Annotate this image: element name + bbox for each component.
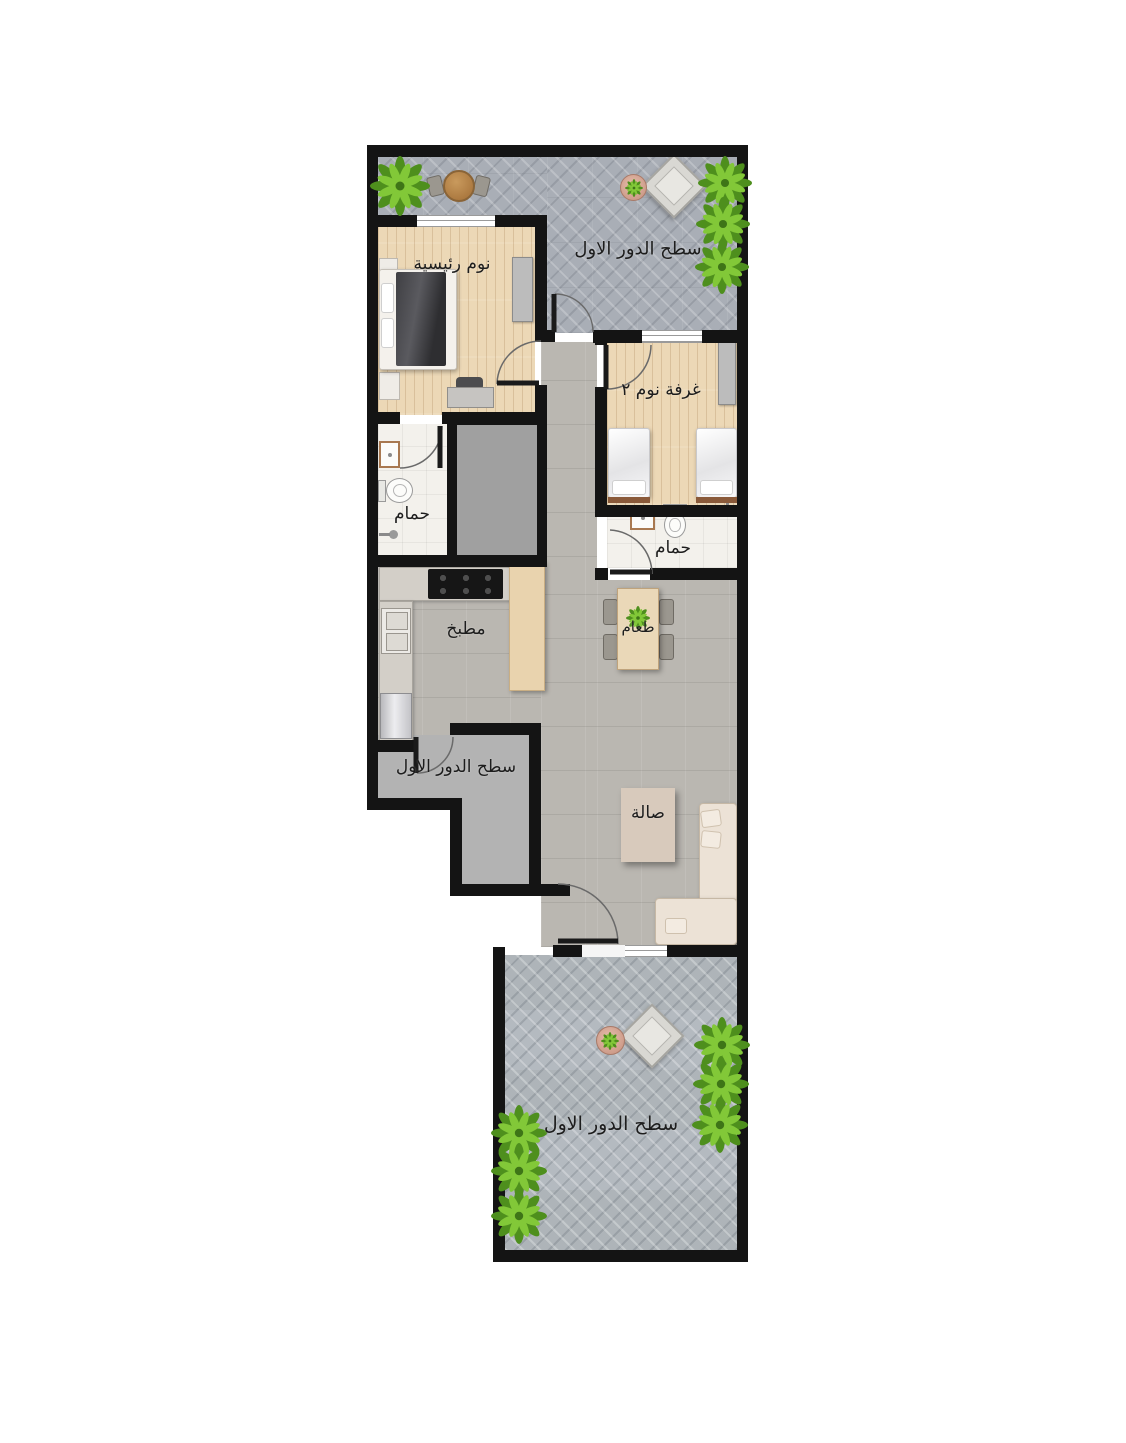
- wall: [595, 330, 607, 345]
- terrace-bottom-floor: [505, 955, 737, 1250]
- wall: [367, 412, 400, 424]
- living-window: [625, 945, 667, 957]
- wall: [595, 568, 608, 580]
- terrace-side-label: سطح الدور الاول: [396, 757, 516, 777]
- master-bedroom-window: [417, 215, 495, 227]
- wall: [595, 387, 607, 517]
- wall: [535, 215, 547, 342]
- living-door-opening: [582, 945, 625, 957]
- bathroom1-sink: [379, 441, 400, 468]
- wall: [667, 945, 737, 957]
- wall: [537, 415, 547, 567]
- kitchen-label: مطبخ: [446, 619, 485, 639]
- wall: [367, 145, 378, 810]
- wall: [737, 145, 748, 1262]
- corridor-floor: [541, 342, 597, 557]
- living-label: صالة: [631, 803, 665, 823]
- wall: [493, 947, 505, 1262]
- master-pillow-2: [381, 318, 394, 348]
- bathroom2-label: حمام: [655, 538, 691, 558]
- kitchen-hob: [428, 569, 503, 599]
- bedroom2-window: [642, 330, 702, 343]
- terrace-top-label: سطح الدور الاول: [574, 239, 701, 260]
- bedroom2-pillow-left: [612, 480, 646, 495]
- kitchen-sink: [381, 608, 411, 654]
- wall: [367, 555, 547, 567]
- wall: [553, 945, 582, 957]
- kitchen-sink-basin-2: [386, 633, 408, 651]
- living-sofa-cushion-1: [700, 809, 722, 829]
- wall: [595, 505, 737, 517]
- bedroom2-wardrobe: [718, 340, 736, 405]
- bathroom1-toilet-tank: [378, 480, 386, 502]
- bedroom2-bedbase-left: [608, 497, 650, 503]
- wall: [367, 215, 417, 227]
- kitchen-fridge: [380, 693, 412, 739]
- wall: [650, 568, 737, 580]
- terrace-side-table-top: [620, 174, 647, 201]
- living-rug: [621, 788, 675, 862]
- wall: [493, 1250, 748, 1262]
- wall: [450, 884, 570, 896]
- nightstand-bottom: [379, 372, 400, 400]
- master-pillow-1: [381, 283, 394, 313]
- wall: [702, 330, 737, 343]
- bedroom2-label: غرفة نوم ٢: [621, 380, 701, 400]
- master-bed-blanket: [396, 272, 446, 366]
- kitchen-island: [509, 561, 545, 691]
- wall: [541, 330, 555, 342]
- wall: [447, 415, 547, 425]
- wall: [529, 723, 541, 896]
- terrace-bottom-label: سطح الدور الاول: [544, 1113, 678, 1135]
- terrace-side-floor-lower: [462, 798, 529, 884]
- living-sofa-cushion-3: [665, 918, 687, 934]
- terrace-side-table-bottom: [596, 1026, 625, 1055]
- bathroom1-toilet: [386, 478, 413, 503]
- wall: [367, 798, 462, 810]
- dining-chair-2: [603, 634, 618, 660]
- bedroom2-pillow-right: [700, 480, 733, 495]
- wall: [367, 145, 748, 157]
- bathroom1-shower-head: [389, 530, 398, 539]
- bedroom2-bedbase-right: [696, 497, 737, 503]
- wall: [447, 415, 457, 567]
- kitchen-sink-basin-1: [386, 612, 408, 630]
- master-bedroom-label: نوم رئيسية: [414, 254, 491, 274]
- living-sofa-cushion-2: [700, 830, 722, 849]
- shaft-floor: [457, 425, 537, 557]
- dining-chair-3: [659, 599, 674, 625]
- floor-plan-canvas: سطح الدور الاول نوم رئيسية غرفة نوم ٢ حم…: [0, 0, 1126, 1443]
- terrace-round-table: [443, 170, 475, 202]
- wall: [367, 740, 417, 752]
- bathroom1-label: حمام: [394, 504, 430, 524]
- wall: [450, 798, 462, 896]
- master-dresser: [447, 387, 494, 408]
- bathroom1-shower-arm: [379, 533, 390, 536]
- dining-chair-4: [659, 634, 674, 660]
- wall: [450, 723, 541, 735]
- master-wardrobe: [512, 257, 533, 322]
- dining-chair-1: [603, 599, 618, 625]
- dining-label: طعام: [621, 618, 654, 636]
